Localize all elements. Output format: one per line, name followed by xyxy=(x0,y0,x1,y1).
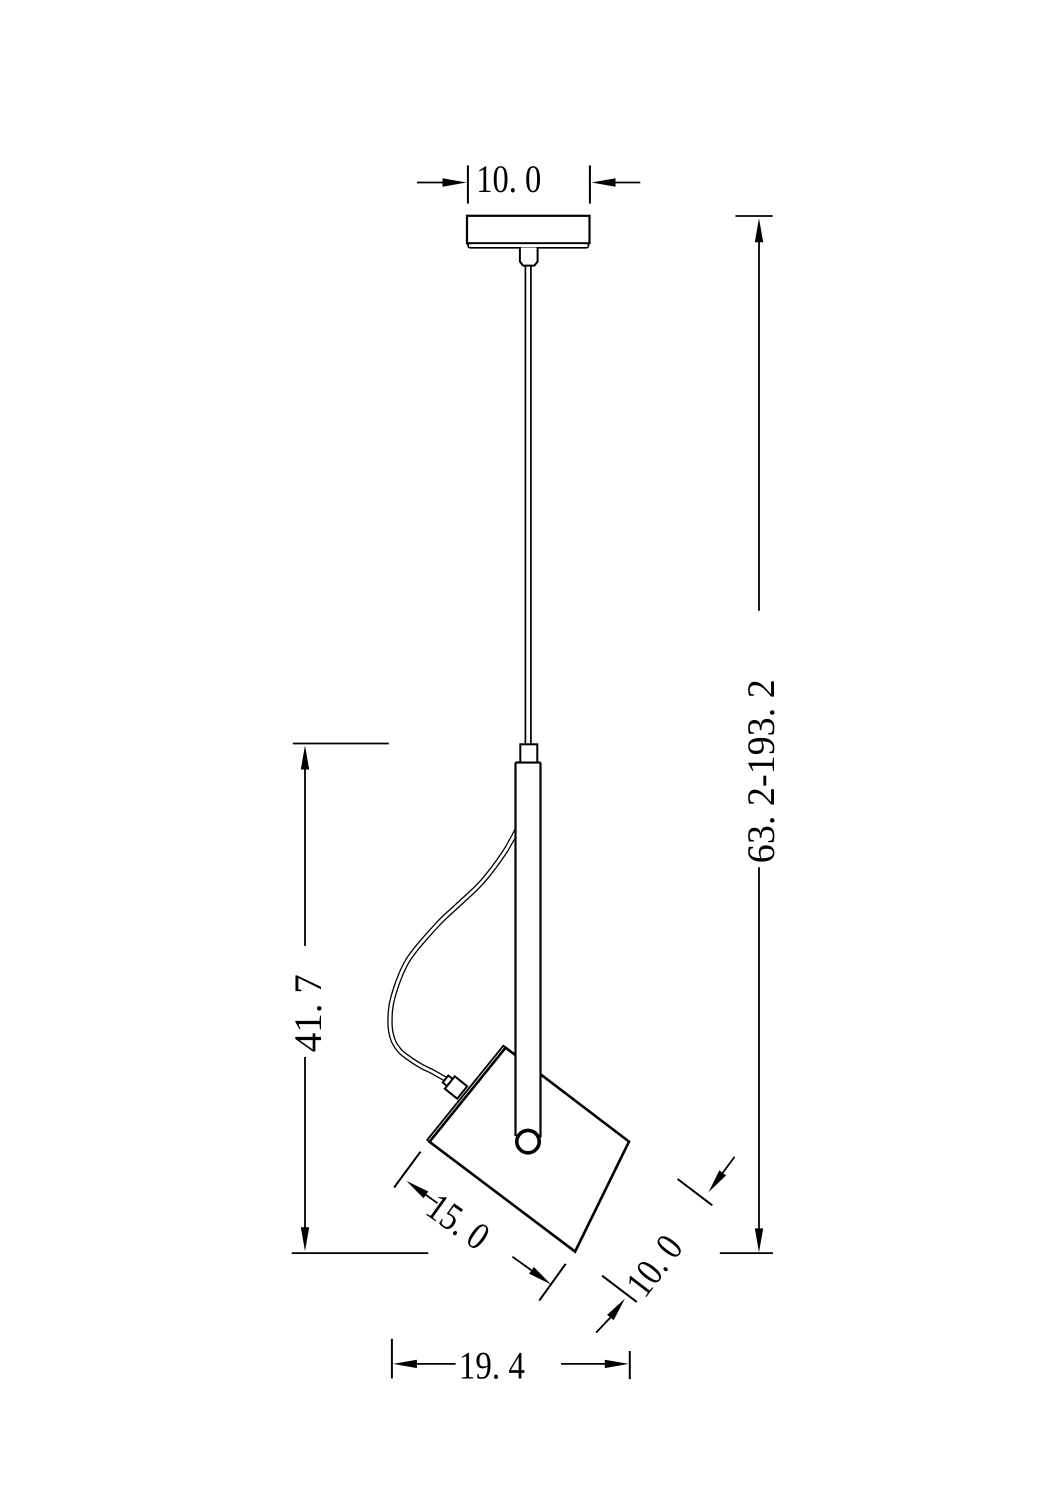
svg-text:41. 7: 41. 7 xyxy=(287,974,330,1052)
svg-text:19. 4: 19. 4 xyxy=(459,1345,525,1388)
svg-text:63. 2-193. 2: 63. 2-193. 2 xyxy=(740,679,783,863)
svg-text:10. 0: 10. 0 xyxy=(476,158,541,201)
